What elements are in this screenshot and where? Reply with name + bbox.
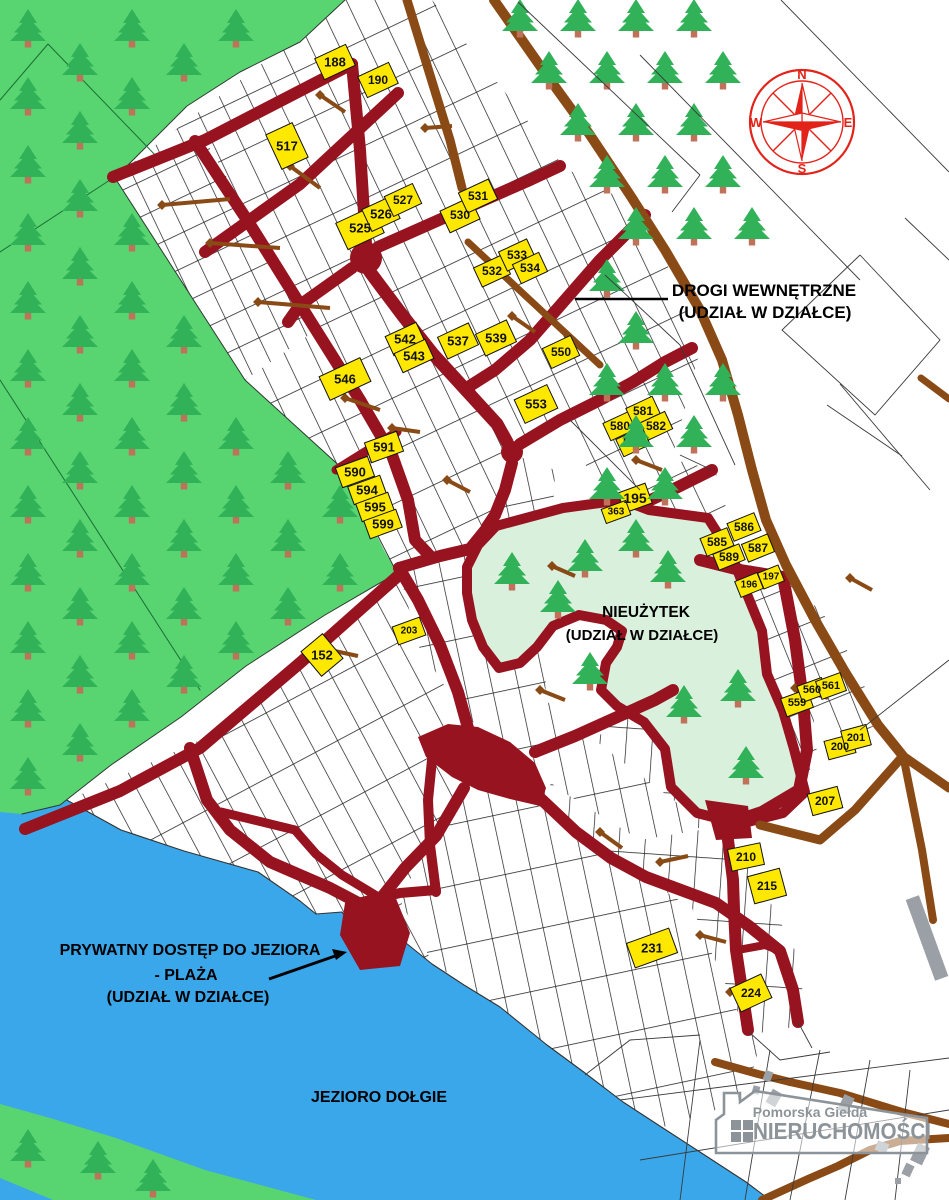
svg-text:- PLAŻA: - PLAŻA xyxy=(154,966,218,984)
svg-text:539: 539 xyxy=(485,331,507,346)
svg-text:559: 559 xyxy=(788,697,806,709)
svg-text:543: 543 xyxy=(403,349,425,364)
svg-text:188: 188 xyxy=(324,55,346,70)
svg-text:586: 586 xyxy=(734,520,754,534)
svg-text:599: 599 xyxy=(372,517,394,532)
svg-text:517: 517 xyxy=(276,139,298,154)
svg-text:525: 525 xyxy=(349,221,371,236)
svg-text:591: 591 xyxy=(373,440,395,455)
svg-text:533: 533 xyxy=(507,248,527,262)
svg-text:215: 215 xyxy=(757,879,777,893)
svg-text:W: W xyxy=(750,115,763,130)
svg-text:585: 585 xyxy=(707,535,727,549)
svg-text:190: 190 xyxy=(368,73,388,87)
svg-text:201: 201 xyxy=(847,732,865,744)
svg-text:550: 550 xyxy=(551,345,571,359)
svg-text:526: 526 xyxy=(370,207,392,222)
svg-text:PRYWATNY DOSTĘP DO JEZIORA: PRYWATNY DOSTĘP DO JEZIORA xyxy=(60,942,321,959)
svg-text:560: 560 xyxy=(803,684,821,696)
svg-text:195: 195 xyxy=(623,490,647,506)
svg-text:587: 587 xyxy=(748,541,768,555)
svg-text:546: 546 xyxy=(334,372,356,387)
svg-text:207: 207 xyxy=(815,794,835,808)
svg-text:197: 197 xyxy=(763,572,780,583)
svg-text:530: 530 xyxy=(450,208,470,222)
svg-text:537: 537 xyxy=(447,334,469,349)
svg-text:582: 582 xyxy=(646,419,666,433)
svg-text:231: 231 xyxy=(641,941,663,956)
svg-text:(UDZIAŁ W DZIAŁCE): (UDZIAŁ W DZIAŁCE) xyxy=(107,989,270,1006)
svg-text:580: 580 xyxy=(610,419,630,433)
svg-text:196: 196 xyxy=(741,580,758,591)
svg-text:590: 590 xyxy=(344,465,366,480)
svg-text:203: 203 xyxy=(401,626,418,637)
svg-text:NIEUŻYTEK: NIEUŻYTEK xyxy=(602,604,691,621)
svg-text:532: 532 xyxy=(482,264,502,278)
svg-text:JEZIORO DOŁGIE: JEZIORO DOŁGIE xyxy=(311,1089,447,1106)
svg-text:N: N xyxy=(797,67,806,82)
svg-text:DROGI WEWNĘTRZNE: DROGI WEWNĘTRZNE xyxy=(672,281,856,300)
svg-text:NIERUCHOMOŚCI: NIERUCHOMOŚCI xyxy=(753,1117,931,1144)
svg-text:542: 542 xyxy=(394,332,416,347)
svg-text:595: 595 xyxy=(364,500,386,515)
svg-text:531: 531 xyxy=(468,189,488,203)
svg-text:(UDZIAŁ W DZIAŁCE): (UDZIAŁ W DZIAŁCE) xyxy=(566,627,718,644)
svg-text:594: 594 xyxy=(356,483,378,498)
svg-text:561: 561 xyxy=(822,680,840,692)
svg-text:E: E xyxy=(844,115,853,130)
svg-text:S: S xyxy=(798,161,807,176)
svg-text:224: 224 xyxy=(741,986,761,1000)
svg-text:210: 210 xyxy=(736,850,756,864)
svg-text:534: 534 xyxy=(520,261,540,275)
svg-text:589: 589 xyxy=(719,550,739,564)
svg-text:363: 363 xyxy=(608,507,625,518)
svg-text:152: 152 xyxy=(311,648,333,663)
svg-text:527: 527 xyxy=(393,193,413,207)
svg-text:553: 553 xyxy=(525,397,547,412)
svg-text:(UDZIAŁ W DZIAŁCE): (UDZIAŁ W DZIAŁCE) xyxy=(679,303,852,322)
